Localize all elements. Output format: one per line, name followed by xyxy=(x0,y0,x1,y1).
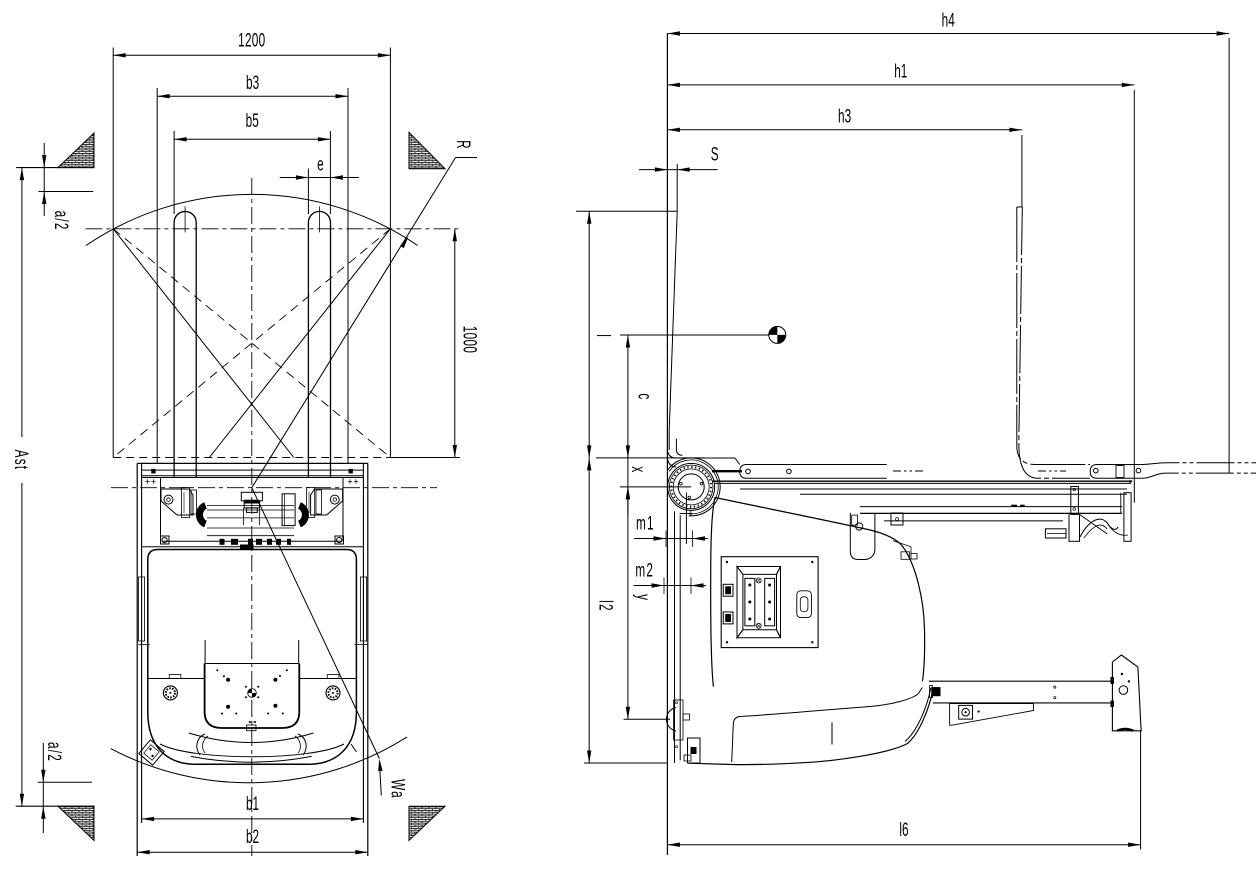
svg-text:a/2: a/2 xyxy=(43,742,63,762)
svg-text:b3: b3 xyxy=(246,74,259,94)
svg-text:S: S xyxy=(711,145,720,165)
svg-text:R: R xyxy=(452,140,472,150)
svg-text:1000: 1000 xyxy=(459,326,479,353)
svg-text:h4: h4 xyxy=(942,11,955,31)
svg-text:x: x xyxy=(627,466,647,473)
svg-text:Wa: Wa xyxy=(386,779,406,799)
svg-text:b2: b2 xyxy=(246,827,259,847)
svg-text:m2: m2 xyxy=(635,561,654,581)
svg-text:b5: b5 xyxy=(246,111,259,131)
svg-text:l6: l6 xyxy=(899,820,908,840)
svg-text:m1: m1 xyxy=(636,514,655,534)
svg-text:b1: b1 xyxy=(246,794,259,814)
svg-text:e: e xyxy=(317,155,325,175)
svg-text:h3: h3 xyxy=(838,107,851,127)
svg-text:l: l xyxy=(592,334,612,338)
svg-text:l2: l2 xyxy=(595,600,615,612)
svg-text:c: c xyxy=(634,393,654,400)
svg-text:1200: 1200 xyxy=(238,31,265,51)
svg-text:h1: h1 xyxy=(894,62,907,82)
svg-text:a/2: a/2 xyxy=(50,211,70,231)
svg-text:Ast: Ast xyxy=(10,450,30,471)
svg-text:y: y xyxy=(632,594,652,601)
